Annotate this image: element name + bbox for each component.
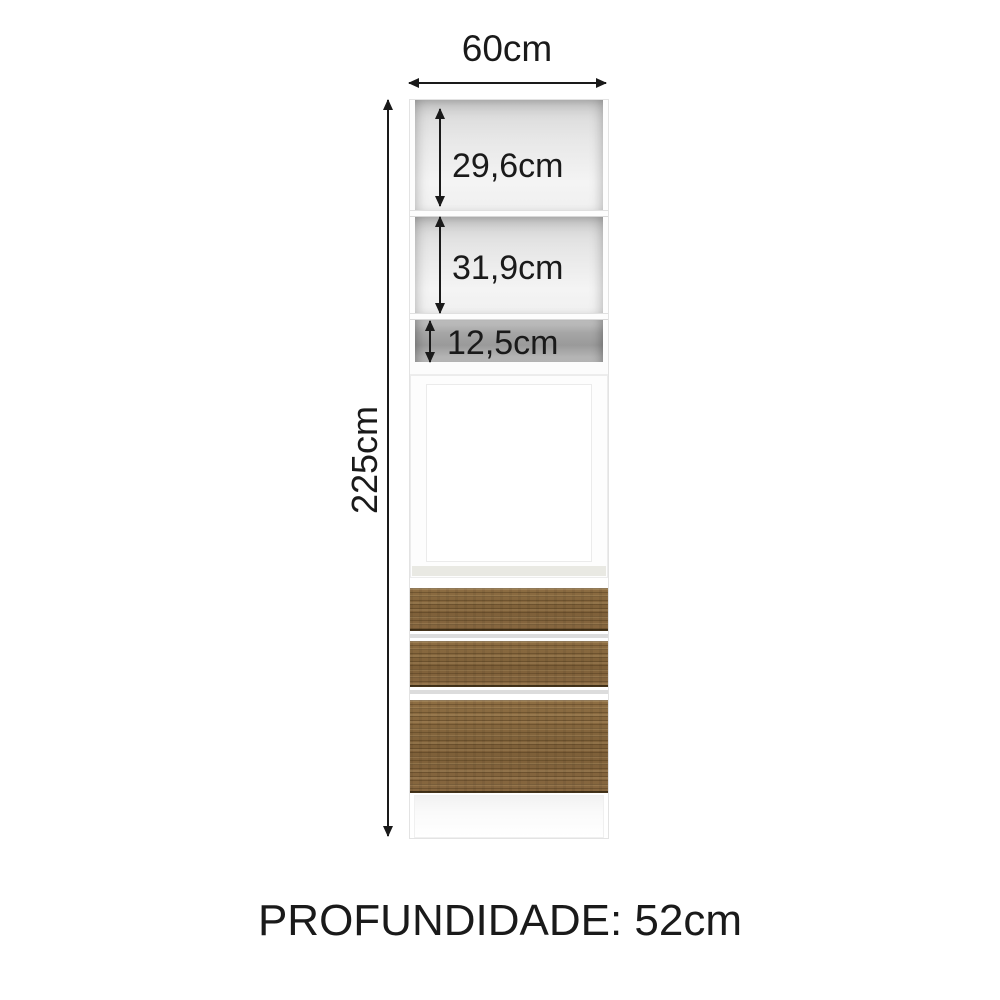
height-dimension-label: 225cm	[344, 395, 380, 525]
drawer-front-3	[410, 700, 608, 793]
shelf-divider-2	[410, 313, 608, 320]
oven-opening-frame	[410, 375, 608, 578]
product-dimension-diagram: 60cm 225cm 29,6cm 31,9cm 12,5cm PROFUNDI…	[0, 0, 1000, 1000]
oven-opening-cutout	[426, 384, 592, 562]
top-compartment-label: 29,6cm	[452, 147, 564, 186]
width-dimension-label: 60cm	[408, 28, 606, 70]
depth-label: PROFUNDIDADE: 52cm	[0, 896, 1000, 946]
base-plinth	[414, 795, 604, 838]
middle-compartment-label: 31,9cm	[452, 249, 564, 288]
top-compartment-arrow	[439, 109, 441, 206]
drawer-gap-2	[410, 687, 608, 700]
oven-opening-sill	[412, 566, 606, 576]
niche-compartment-arrow	[429, 321, 431, 362]
drawer-front-1	[410, 588, 608, 631]
cabinet	[410, 100, 608, 838]
niche-compartment-label: 12,5cm	[447, 324, 559, 363]
drawer-gap-1	[410, 631, 608, 641]
height-dimension-arrow	[387, 100, 389, 836]
niche-bottom-panel	[410, 362, 608, 375]
drawer-front-2	[410, 641, 608, 687]
width-dimension-arrow	[409, 82, 606, 84]
middle-compartment-arrow	[439, 217, 441, 313]
